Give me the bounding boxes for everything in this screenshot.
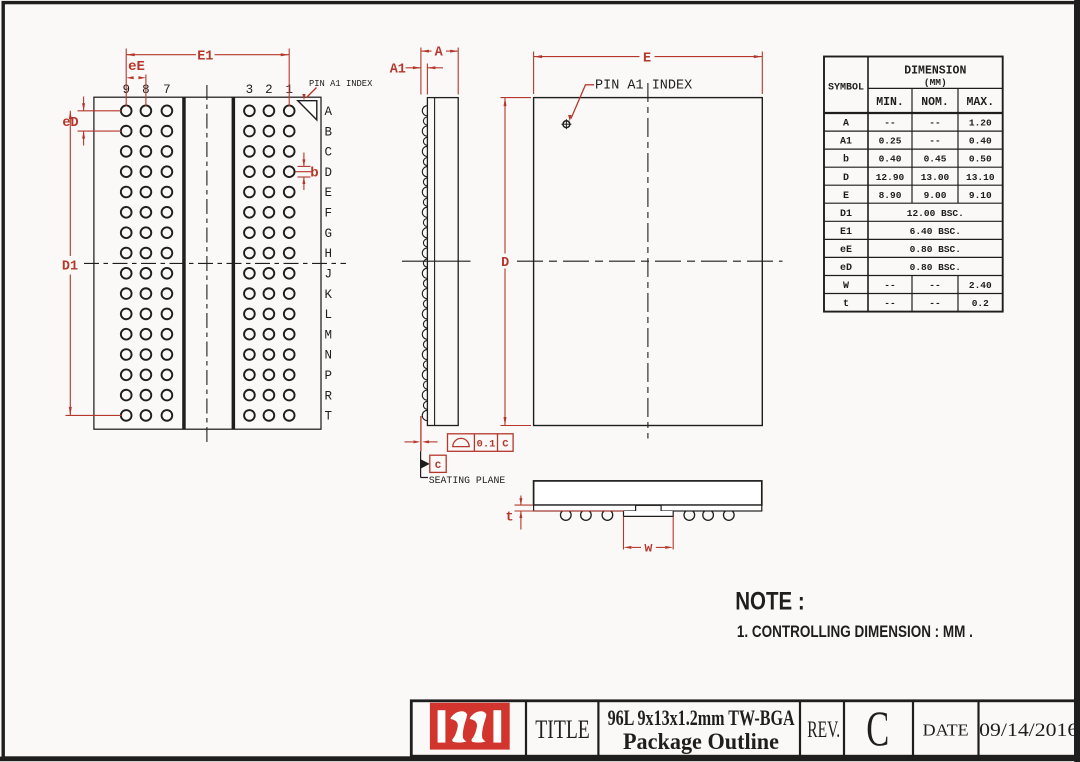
svg-text:PIN A1 INDEX: PIN A1 INDEX: [595, 79, 692, 94]
svg-text:C: C: [325, 146, 333, 160]
svg-text:D: D: [843, 173, 849, 184]
svg-text:C: C: [435, 460, 442, 472]
svg-text:--: --: [929, 298, 940, 309]
svg-text:SYMBOL: SYMBOL: [828, 83, 864, 94]
svg-text:12.00 BSC.: 12.00 BSC.: [907, 208, 964, 219]
svg-text:0.25: 0.25: [879, 136, 902, 147]
svg-text:w: w: [644, 542, 653, 557]
svg-text:K: K: [325, 288, 333, 302]
svg-text:M: M: [325, 328, 333, 342]
svg-text:A1: A1: [840, 137, 852, 148]
svg-text:(MM): (MM): [924, 77, 947, 88]
svg-text:MAX.: MAX.: [966, 96, 994, 109]
svg-text:0.40: 0.40: [879, 154, 902, 165]
svg-text:0.1: 0.1: [477, 439, 496, 451]
svg-text:--: --: [929, 280, 940, 291]
svg-text:1. CONTROLLING DIMENSION : MM: 1. CONTROLLING DIMENSION : MM .: [737, 622, 973, 641]
svg-text:--: --: [884, 280, 895, 291]
svg-text:P: P: [325, 369, 333, 383]
svg-text:N: N: [325, 349, 333, 363]
svg-text:PIN A1 INDEX: PIN A1 INDEX: [309, 79, 373, 89]
svg-text:3: 3: [246, 83, 254, 97]
svg-text:0.80 BSC.: 0.80 BSC.: [910, 244, 961, 255]
svg-text:09/14/2016: 09/14/2016: [979, 720, 1078, 741]
svg-text:9.00: 9.00: [924, 190, 947, 201]
svg-text:L: L: [325, 308, 333, 322]
svg-text:DIMENSION: DIMENSION: [904, 65, 966, 78]
svg-text:C: C: [866, 700, 889, 756]
svg-text:2.40: 2.40: [969, 280, 992, 291]
svg-text:E: E: [643, 51, 651, 66]
svg-text:1.20: 1.20: [969, 118, 992, 129]
svg-text:A: A: [435, 46, 444, 61]
svg-text:t: t: [843, 299, 849, 310]
svg-text:0.45: 0.45: [924, 154, 947, 165]
svg-text:D1: D1: [62, 260, 78, 275]
svg-text:A: A: [325, 105, 333, 119]
svg-text:t: t: [505, 511, 513, 526]
svg-text:NOTE :: NOTE :: [735, 588, 805, 616]
svg-text:E1: E1: [197, 49, 213, 64]
svg-text:W: W: [843, 281, 849, 292]
svg-text:H: H: [325, 247, 333, 261]
svg-text:96L 9x13x1.2mm TW-BGA: 96L 9x13x1.2mm TW-BGA: [608, 705, 796, 730]
svg-text:T: T: [325, 410, 333, 424]
svg-text:eD: eD: [840, 263, 852, 274]
svg-text:J: J: [325, 268, 333, 282]
svg-text:A1: A1: [390, 62, 406, 77]
svg-text:R: R: [325, 389, 333, 403]
svg-text:8.90: 8.90: [879, 190, 902, 201]
svg-text:SEATING PLANE: SEATING PLANE: [429, 475, 506, 486]
svg-text:2: 2: [265, 83, 273, 97]
svg-text:13.10: 13.10: [966, 172, 995, 183]
svg-text:0.2: 0.2: [972, 298, 989, 309]
svg-text:--: --: [884, 298, 895, 309]
svg-text:C: C: [502, 439, 509, 451]
svg-text:G: G: [325, 227, 333, 241]
svg-text:REV.: REV.: [807, 717, 840, 742]
svg-text:F: F: [325, 207, 333, 221]
svg-text:D: D: [325, 166, 333, 180]
svg-text:b: b: [843, 154, 849, 166]
svg-text:TITLE: TITLE: [535, 715, 590, 744]
svg-text:12.90: 12.90: [876, 172, 905, 183]
svg-text:--: --: [929, 118, 940, 129]
svg-text:D1: D1: [840, 209, 852, 220]
svg-text:Package Outline: Package Outline: [623, 729, 779, 755]
svg-text:6.40 BSC.: 6.40 BSC.: [910, 226, 961, 237]
svg-text:NOM.: NOM.: [921, 96, 949, 109]
svg-text:A: A: [843, 119, 849, 130]
svg-text:0.50: 0.50: [969, 154, 992, 165]
svg-text:E1: E1: [840, 227, 852, 238]
svg-text:B: B: [325, 125, 333, 139]
svg-text:0.40: 0.40: [969, 136, 992, 147]
svg-text:9.10: 9.10: [969, 190, 992, 201]
svg-text:7: 7: [163, 83, 171, 97]
svg-text:--: --: [929, 136, 940, 147]
svg-text:13.00: 13.00: [921, 172, 950, 183]
svg-text:0.80 BSC.: 0.80 BSC.: [910, 262, 961, 273]
svg-text:--: --: [884, 118, 895, 129]
svg-text:MIN.: MIN.: [876, 96, 904, 109]
svg-text:eE: eE: [840, 245, 852, 256]
svg-text:b: b: [310, 166, 318, 182]
svg-text:eE: eE: [128, 59, 145, 75]
svg-text:E: E: [325, 186, 333, 200]
svg-text:DATE: DATE: [923, 721, 969, 740]
svg-text:E: E: [843, 191, 849, 202]
svg-text:D: D: [501, 256, 509, 271]
